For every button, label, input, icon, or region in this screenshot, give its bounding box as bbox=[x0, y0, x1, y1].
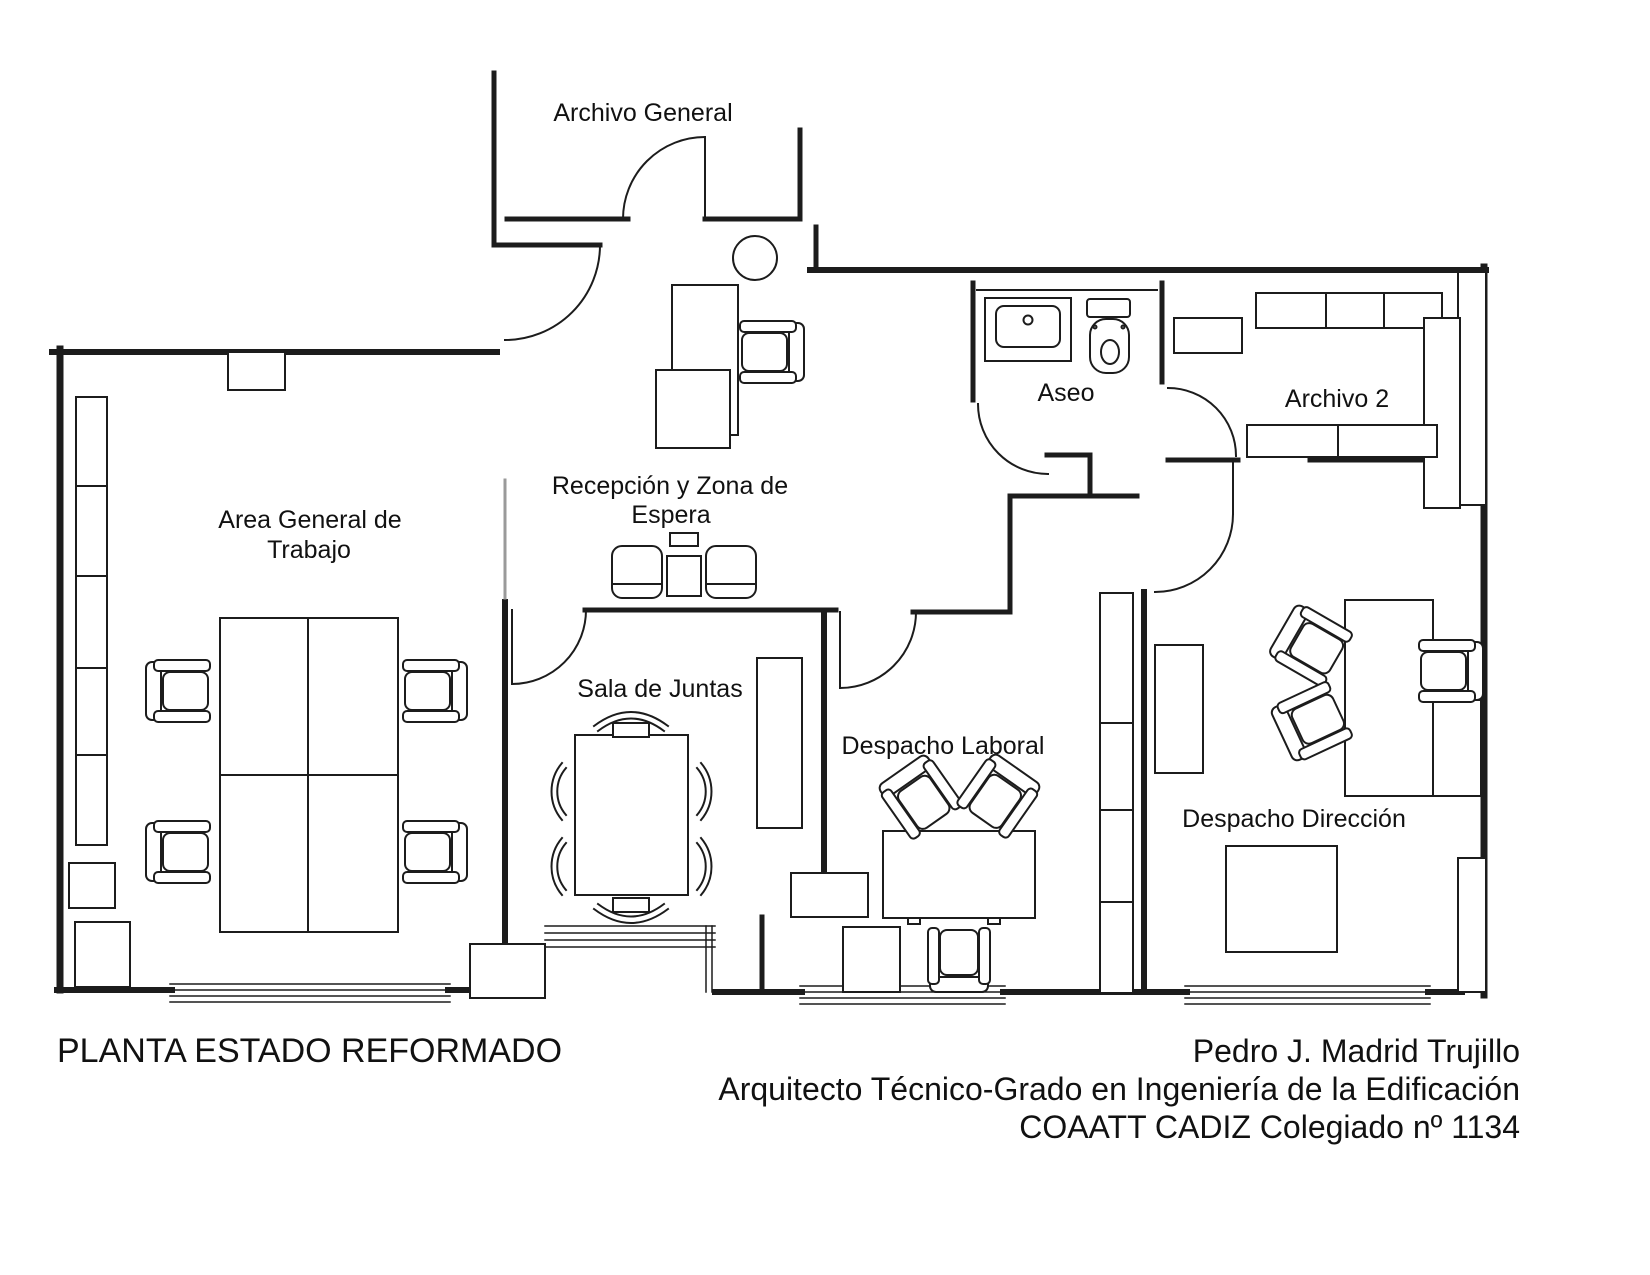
label-despacho-laboral: Despacho Laboral bbox=[842, 732, 1045, 760]
side-chair bbox=[552, 763, 566, 820]
visitor-chair bbox=[876, 752, 963, 840]
office-chair bbox=[928, 928, 990, 992]
label-recepcion-line1: Recepción y Zona de bbox=[552, 472, 788, 500]
wall-pilaster bbox=[69, 863, 115, 908]
door-archivo-general bbox=[623, 137, 705, 219]
label-archivo-2: Archivo 2 bbox=[1285, 385, 1389, 413]
office-chair bbox=[1419, 640, 1483, 702]
credit-author: Pedro J. Madrid Trujillo bbox=[1193, 1033, 1520, 1069]
door-despacho-laboral bbox=[840, 612, 916, 688]
visitor-chair bbox=[1269, 681, 1353, 764]
desk-return bbox=[1433, 700, 1481, 796]
door-archivo-2 bbox=[1168, 388, 1236, 456]
label-area-general-line1: Area General de bbox=[218, 506, 401, 534]
office-chair bbox=[146, 660, 210, 722]
label-despacho-direccion: Despacho Dirección bbox=[1182, 805, 1406, 833]
plan-root: Archivo General Aseo Archivo 2 Recepción… bbox=[52, 73, 1520, 1145]
door-area-general bbox=[505, 245, 600, 340]
despacho-laboral-furniture bbox=[843, 593, 1133, 993]
cabinet-column bbox=[1100, 593, 1133, 993]
side-chair bbox=[697, 763, 711, 820]
side-chair bbox=[697, 838, 711, 895]
shelf bbox=[1174, 318, 1242, 353]
corner-cabinet bbox=[75, 922, 130, 987]
sideboard bbox=[1155, 645, 1203, 773]
conference-table bbox=[575, 735, 688, 895]
door-despacho-direccion bbox=[1155, 460, 1233, 592]
plan-title: PLANTA ESTADO REFORMADO bbox=[57, 1032, 562, 1070]
area-general-furniture bbox=[69, 397, 467, 987]
head-chair bbox=[613, 723, 649, 737]
label-aseo: Aseo bbox=[1038, 379, 1095, 407]
despacho-direccion-furniture bbox=[1155, 600, 1483, 952]
desk bbox=[883, 831, 1035, 918]
office-chair bbox=[403, 821, 467, 883]
label-archivo-general: Archivo General bbox=[553, 99, 732, 127]
shelf-column bbox=[76, 397, 107, 845]
sideboard bbox=[757, 658, 802, 828]
floor-plan-drawing: Archivo General Aseo Archivo 2 Recepción… bbox=[0, 0, 1650, 1275]
label-recepcion-line2: Espera bbox=[631, 501, 710, 529]
side-table bbox=[667, 556, 701, 596]
plant bbox=[733, 236, 777, 280]
label-sala-juntas: Sala de Juntas bbox=[577, 675, 742, 703]
shelf-right bbox=[1424, 318, 1460, 508]
toilet-tank bbox=[1087, 299, 1130, 317]
office-chair bbox=[740, 321, 804, 383]
footer: PLANTA ESTADO REFORMADO Pedro J. Madrid … bbox=[57, 1032, 1520, 1145]
meeting-table bbox=[1226, 846, 1337, 952]
visitor-chair bbox=[1267, 602, 1353, 688]
sink bbox=[996, 306, 1060, 347]
visitor-chair bbox=[956, 751, 1043, 839]
label-area-general-line2: Trabajo bbox=[267, 536, 351, 564]
side-cabinet bbox=[656, 370, 730, 448]
door-sala-juntas bbox=[512, 610, 586, 684]
waiting-chair bbox=[706, 546, 756, 598]
floor-plan-page: Archivo General Aseo Archivo 2 Recepción… bbox=[0, 0, 1650, 1275]
credit-degree: Arquitecto Técnico-Grado en Ingeniería d… bbox=[718, 1071, 1520, 1107]
door-aseo bbox=[978, 404, 1048, 474]
waiting-chair bbox=[612, 546, 662, 598]
shelf-band-bottom bbox=[1247, 425, 1437, 457]
side-chair bbox=[552, 838, 566, 895]
head-chair bbox=[613, 898, 649, 912]
reception-furniture bbox=[612, 236, 804, 598]
credit-college: COAATT CADIZ Colegiado nº 1134 bbox=[1019, 1109, 1520, 1145]
aseo-fixtures bbox=[985, 298, 1130, 373]
office-chair bbox=[146, 821, 210, 883]
shelf-band-top bbox=[1256, 293, 1442, 328]
magazine-rack bbox=[670, 533, 698, 546]
side-table bbox=[843, 927, 900, 992]
office-chair bbox=[403, 660, 467, 722]
